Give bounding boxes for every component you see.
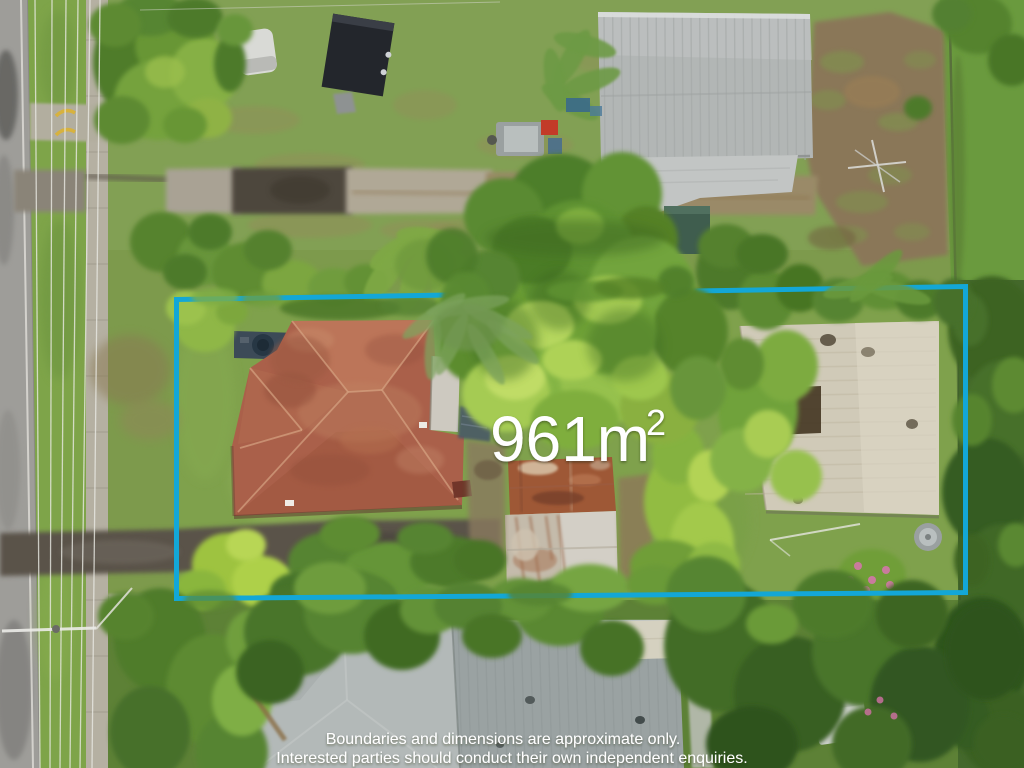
svg-text:Interested parties should cond: Interested parties should conduct their …: [276, 750, 747, 767]
svg-text:2: 2: [646, 402, 666, 443]
svg-text:961m: 961m: [490, 403, 650, 475]
svg-text:Boundaries and dimensions are: Boundaries and dimensions are approximat…: [326, 731, 681, 748]
